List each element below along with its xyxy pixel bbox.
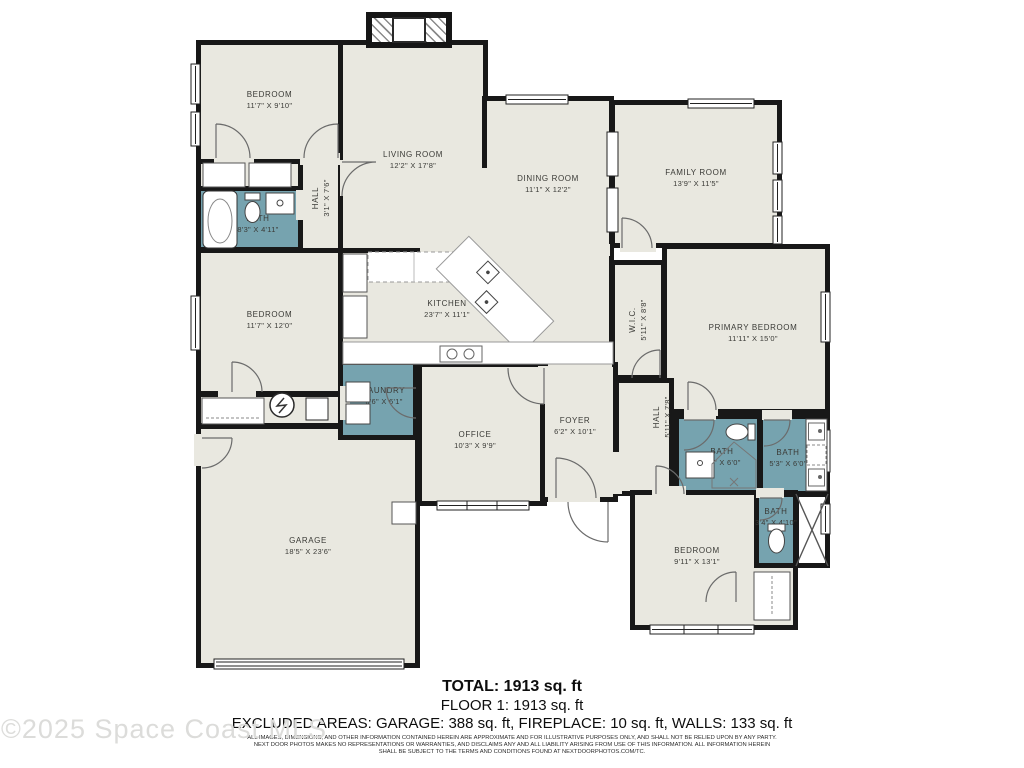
pantry-shelf: [343, 254, 367, 292]
closets: [202, 163, 790, 620]
toilet-tank: [748, 424, 755, 440]
utility-box: [306, 398, 328, 420]
closet: [203, 163, 245, 187]
washer: [346, 382, 370, 402]
door-arc: [706, 572, 736, 602]
disclaimer-line-3: SHALL BE SUBJECT TO THE TERMS AND CONDIT…: [0, 749, 1024, 756]
door-arc: [386, 388, 416, 418]
door-arc: [202, 438, 232, 468]
cased-opening: [607, 188, 618, 232]
toilet-bowl: [245, 202, 260, 223]
sink-basin: [464, 349, 474, 359]
copyright-watermark: ©2025 Space Coast MLS: [1, 714, 327, 745]
corner-shower: [712, 442, 756, 488]
door-arc: [622, 218, 652, 248]
toilet-bowl: [726, 424, 748, 440]
door-arc: [764, 420, 790, 446]
door-arc: [342, 162, 376, 196]
door-arc: [556, 458, 596, 498]
door-arc: [216, 124, 250, 158]
door-arc: [684, 420, 714, 450]
floor-area: FLOOR 1: 1913 sq. ft: [0, 697, 1024, 714]
sink-vanity: [266, 193, 294, 214]
toilet-bowl: [769, 529, 785, 553]
door-arc: [760, 498, 782, 520]
toilet-tank: [245, 193, 260, 200]
door-arc: [232, 362, 262, 392]
kitchen-island: [436, 236, 553, 353]
closet: [249, 163, 291, 187]
kitchen-counters: [343, 236, 613, 364]
double-vanity: [806, 419, 827, 491]
dryer: [346, 404, 370, 424]
total-area: TOTAL: 1913 sq. ft: [0, 678, 1024, 696]
closet: [202, 398, 264, 424]
cased-opening: [607, 132, 618, 176]
door-arc: [568, 502, 608, 542]
garage-door: [214, 659, 404, 669]
windows: [191, 64, 830, 669]
kitchen-counter-bottom: [343, 342, 613, 364]
fixtures-layer: [0, 0, 1024, 768]
shower-drain: [730, 478, 738, 486]
door-arc: [688, 382, 716, 410]
sink-basin: [447, 349, 457, 359]
floor-plan-page: BATH8'3" X 4'11"HALL3'1" X 7'6"BEDROOM11…: [0, 0, 1024, 768]
pantry-shelf: [343, 296, 367, 338]
door-arc: [304, 124, 338, 158]
door-arc: [508, 368, 544, 404]
door-arc: [632, 350, 660, 378]
door-arc: [656, 466, 684, 494]
garage-step: [392, 502, 416, 524]
